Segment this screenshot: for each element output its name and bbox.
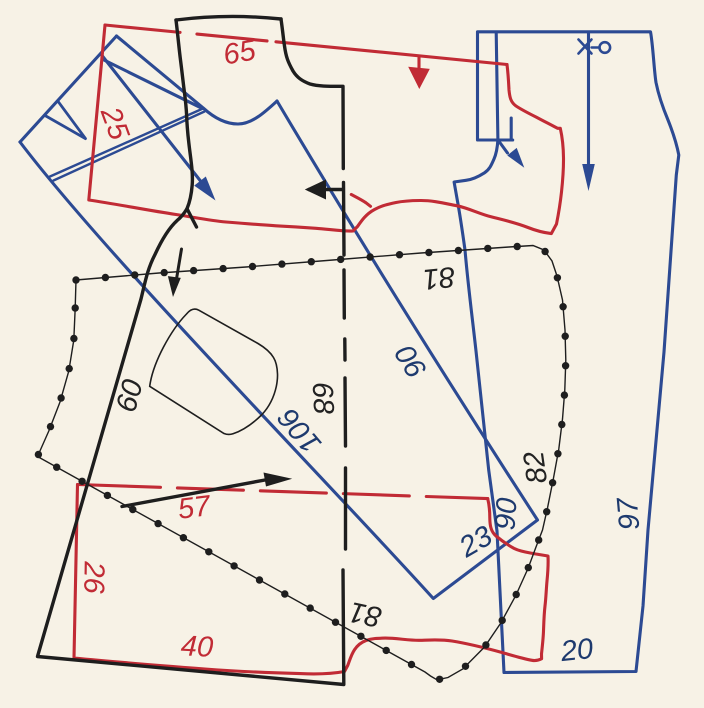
svg-text:57: 57 bbox=[176, 490, 214, 526]
svg-text:20: 20 bbox=[558, 633, 594, 668]
svg-text:81: 81 bbox=[346, 595, 384, 633]
svg-text:26: 26 bbox=[77, 560, 110, 595]
svg-text:65: 65 bbox=[221, 34, 259, 71]
svg-text:82: 82 bbox=[518, 449, 554, 485]
svg-text:97: 97 bbox=[611, 495, 646, 532]
svg-text:81: 81 bbox=[421, 260, 456, 295]
svg-text:40: 40 bbox=[180, 630, 214, 664]
svg-text:90: 90 bbox=[489, 497, 523, 531]
svg-text:68: 68 bbox=[306, 381, 340, 415]
